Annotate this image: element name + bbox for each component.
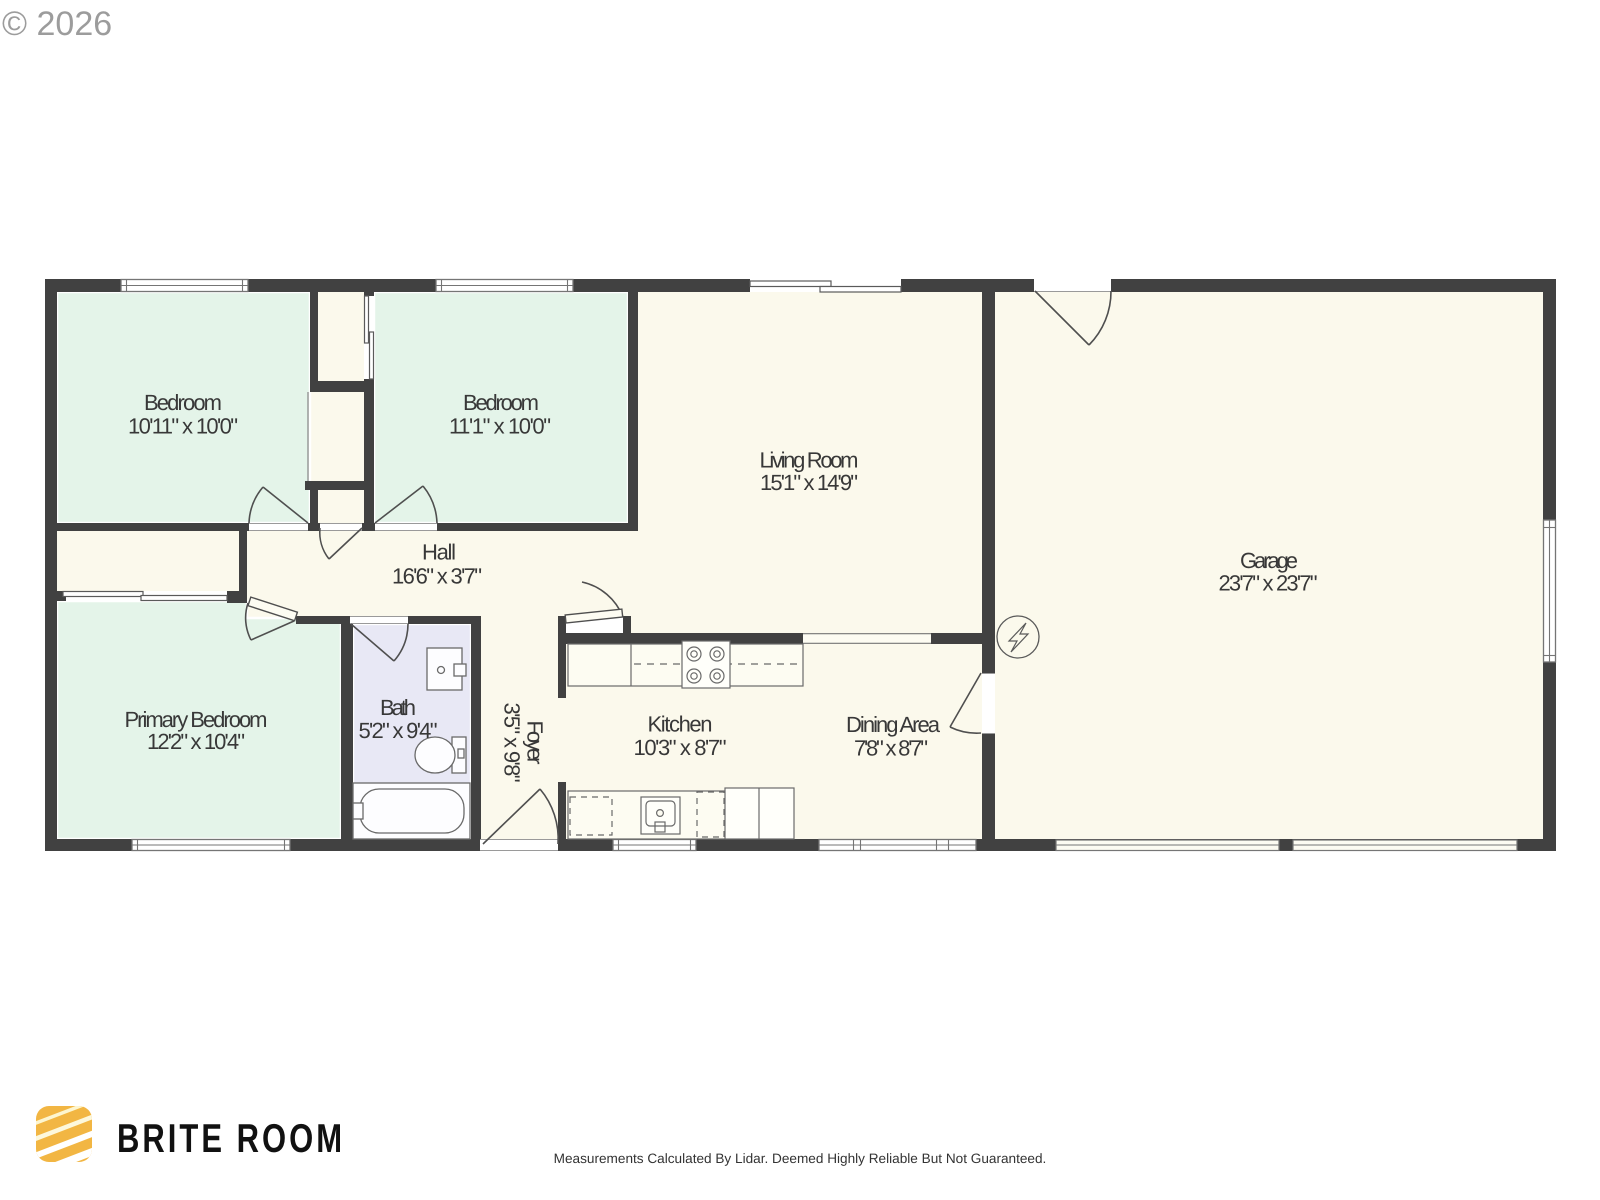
svg-text:11'1" x 10'0": 11'1" x 10'0" [449,414,551,439]
svg-text:Bath: Bath [380,695,416,720]
svg-text:Garage: Garage [1240,548,1298,573]
svg-text:Measurements Calculated By Lid: Measurements Calculated By Lidar. Deemed… [554,1151,1047,1166]
svg-text:5'2" x 9'4": 5'2" x 9'4" [359,718,438,743]
svg-text:15'1" x 14'9": 15'1" x 14'9" [760,470,858,495]
svg-text:Dining Area: Dining Area [846,712,941,737]
svg-text:Bedroom: Bedroom [144,390,222,415]
svg-text:© 2026: © 2026 [2,5,112,43]
svg-text:10'3" x 8'7": 10'3" x 8'7" [634,735,727,760]
svg-text:16'6" x 3'7": 16'6" x 3'7" [392,564,482,589]
svg-text:23'7" x 23'7": 23'7" x 23'7" [1219,571,1318,596]
svg-text:7'8" x 8'7": 7'8" x 8'7" [854,736,928,761]
svg-text:Living Room: Living Room [760,448,859,473]
svg-text:10'11" x 10'0": 10'11" x 10'0" [128,414,238,439]
svg-text:12'2" x 10'4": 12'2" x 10'4" [147,729,245,754]
svg-text:Hall: Hall [422,540,456,565]
svg-text:Bedroom: Bedroom [463,390,539,415]
svg-text:3'5" x 9'8": 3'5" x 9'8" [500,703,525,783]
svg-text:Kitchen: Kitchen [648,712,713,737]
svg-text:BRITE ROOM: BRITE ROOM [117,1116,345,1162]
svg-text:Foyer: Foyer [523,721,548,765]
